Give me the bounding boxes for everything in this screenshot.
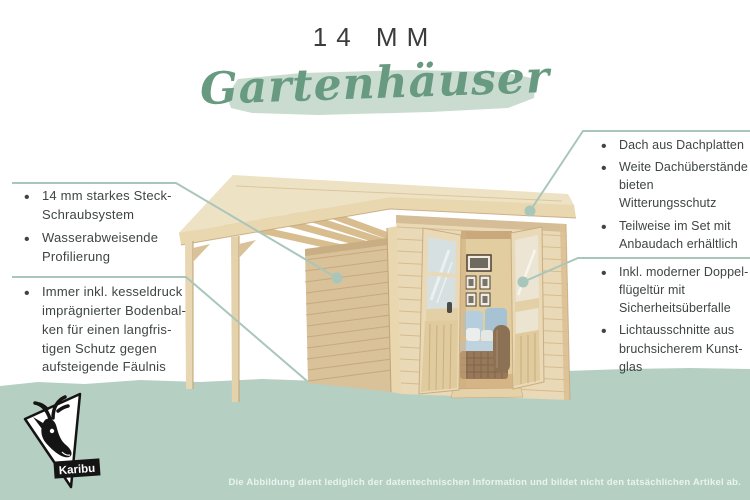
- callout-item: Inkl. moderner Doppel­flügeltür mit Sich…: [599, 263, 750, 317]
- callout-group-right-2: Inkl. moderner Doppel­flügeltür mit Sich…: [599, 263, 750, 380]
- callout-item: Wasserabweisende Profilierung: [22, 229, 184, 267]
- callout-group-left-1: 14 mm starkes Steck-Schraubsystem Wasser…: [22, 187, 184, 270]
- callout-dot: [525, 206, 536, 217]
- karibu-brand-label: Karibu: [58, 463, 95, 478]
- callout-item: Teilweise im Set mit Anbaudach erhältlic…: [599, 217, 750, 253]
- callout-item: Dach aus Dachplatten: [599, 136, 750, 154]
- door-interior: [459, 231, 514, 390]
- callout-dot: [332, 273, 343, 284]
- door-handle: [447, 302, 452, 313]
- callout-item: 14 mm starkes Steck-Schraubsystem: [22, 187, 184, 225]
- callout-item: Lichtausschnitte aus bruchsicherem Kunst…: [599, 321, 750, 375]
- callout-group-left-2: Immer inkl. kesseldruck imprägnierter Bo…: [22, 283, 194, 381]
- callout-dot: [518, 277, 529, 288]
- sofa: [460, 308, 510, 379]
- canopy-posts: [185, 236, 256, 402]
- callout-group-right-1: Dach aus Dachplatten Weite Dachüberständ…: [599, 136, 750, 257]
- door-left-wing: [419, 228, 461, 394]
- callout-item: Weite Dachüberstände bieten Witterungssc…: [599, 158, 750, 212]
- garden-house-illustration: [179, 175, 576, 402]
- door-right-wing: [511, 227, 544, 389]
- disclaimer-text: Die Abbildung dient lediglich der datent…: [228, 477, 741, 488]
- callout-item: Immer inkl. kesseldruck imprägnierter Bo…: [22, 283, 194, 377]
- infographic-page: Karibu 14 MM Gartenhäuser 14 mm starkes …: [0, 0, 750, 500]
- side-wall: [305, 238, 392, 392]
- door-threshold: [451, 388, 523, 398]
